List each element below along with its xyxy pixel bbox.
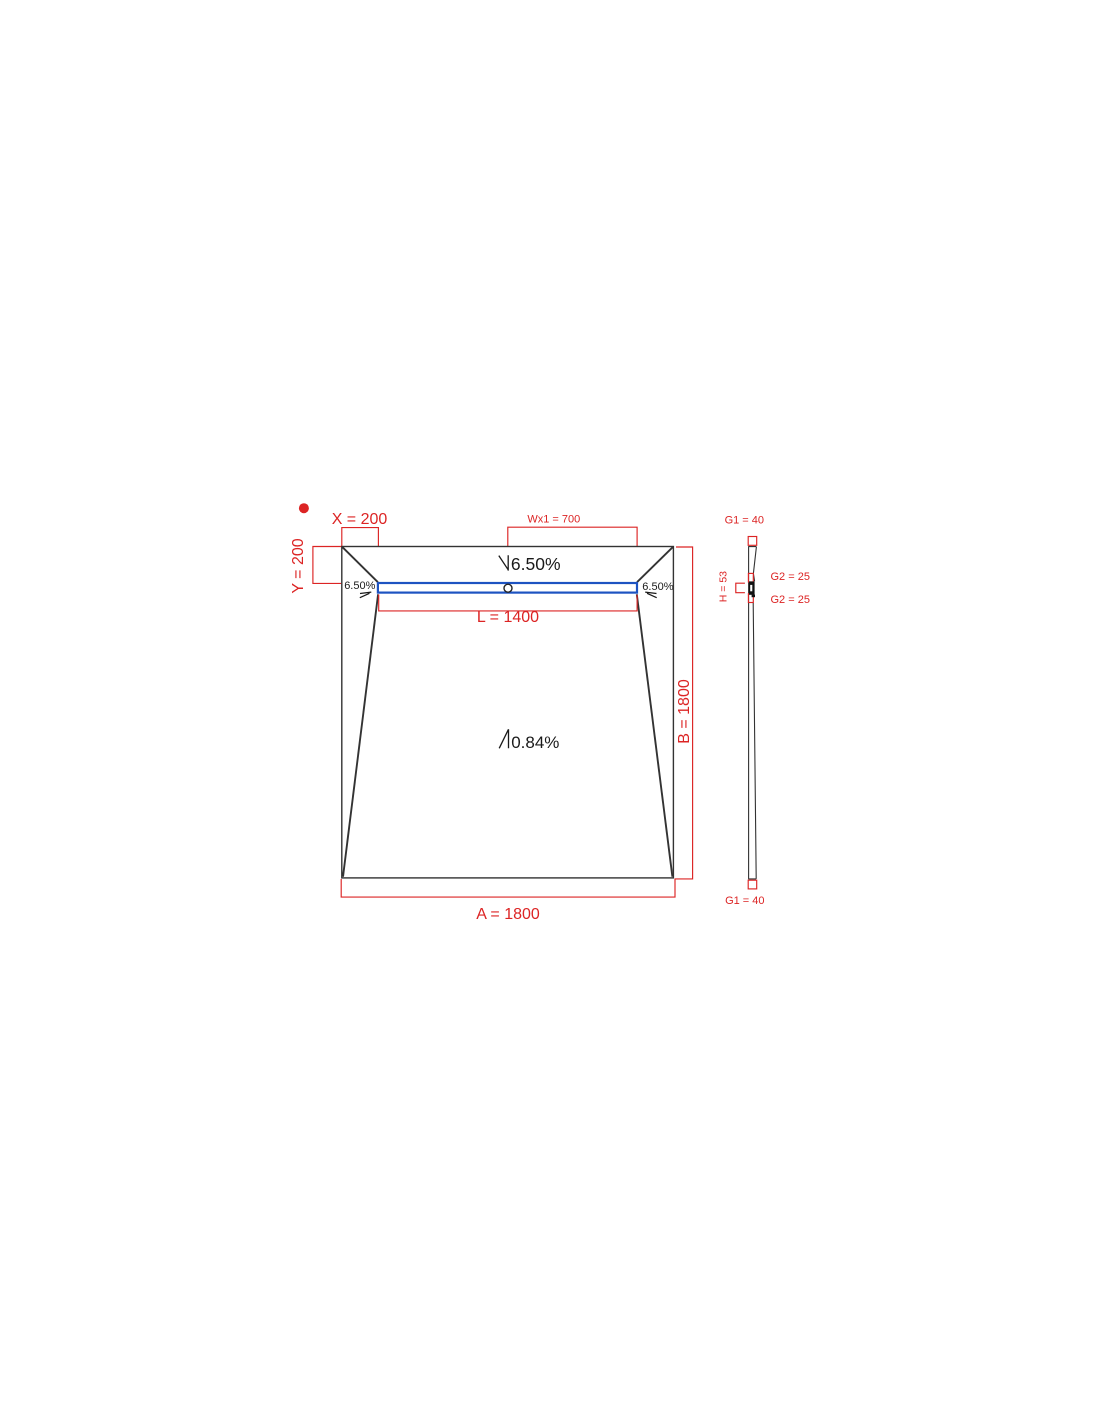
svg-text:G1 = 40: G1 = 40 — [725, 895, 764, 907]
svg-text:H = 53: H = 53 — [718, 571, 730, 602]
svg-text:G2 = 25: G2 = 25 — [771, 594, 810, 606]
svg-text:X = 200: X = 200 — [332, 511, 388, 528]
svg-text:B = 1800: B = 1800 — [676, 679, 693, 744]
svg-text:G2 = 25: G2 = 25 — [771, 571, 810, 583]
svg-text:L = 1400: L = 1400 — [477, 609, 539, 626]
svg-text:6.50%: 6.50% — [344, 580, 375, 592]
svg-text:A = 1800: A = 1800 — [476, 906, 540, 923]
svg-text:Y = 200: Y = 200 — [290, 538, 307, 593]
svg-text:6.50%: 6.50% — [642, 581, 673, 593]
svg-text:0.84%: 0.84% — [511, 733, 559, 752]
svg-text:Wx1 = 700: Wx1 = 700 — [527, 514, 580, 526]
svg-text:6.50%: 6.50% — [511, 554, 561, 574]
svg-text:G1 = 40: G1 = 40 — [725, 515, 764, 527]
